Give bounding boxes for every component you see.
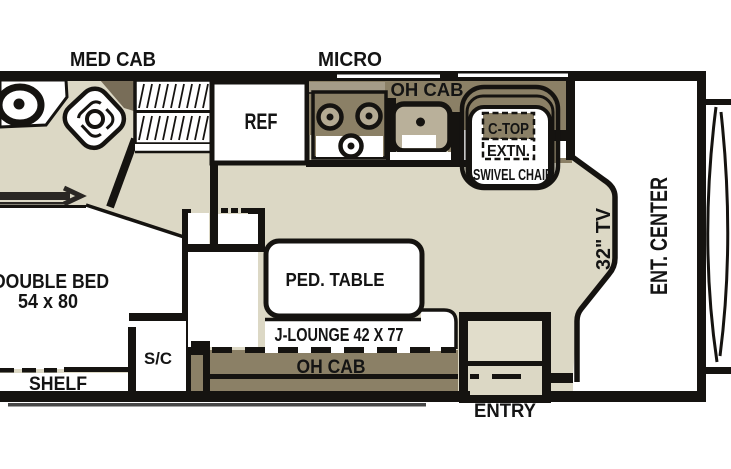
svg-text:J-LOUNGE 42 X 77: J-LOUNGE 42 X 77 xyxy=(275,324,404,345)
svg-text:C-TOP: C-TOP xyxy=(488,121,529,138)
svg-text:PED. TABLE: PED. TABLE xyxy=(286,269,385,290)
svg-text:DOUBLE BED: DOUBLE BED xyxy=(0,271,109,293)
svg-text:MICRO: MICRO xyxy=(318,49,382,71)
svg-text:54 x 80: 54 x 80 xyxy=(18,291,78,313)
svg-text:MED CAB: MED CAB xyxy=(70,49,156,71)
svg-text:ENTRY: ENTRY xyxy=(474,401,536,422)
svg-text:EXTN.: EXTN. xyxy=(487,143,530,160)
svg-text:REF: REF xyxy=(245,109,278,134)
svg-text:OH CAB: OH CAB xyxy=(391,80,464,100)
svg-text:S/C: S/C xyxy=(144,349,172,368)
svg-text:SWIVEL CHAIR: SWIVEL CHAIR xyxy=(473,167,553,184)
svg-text:ENT. CENTER: ENT. CENTER xyxy=(646,177,673,295)
svg-text:32" TV: 32" TV xyxy=(593,207,615,270)
svg-text:OH CAB: OH CAB xyxy=(297,357,366,378)
